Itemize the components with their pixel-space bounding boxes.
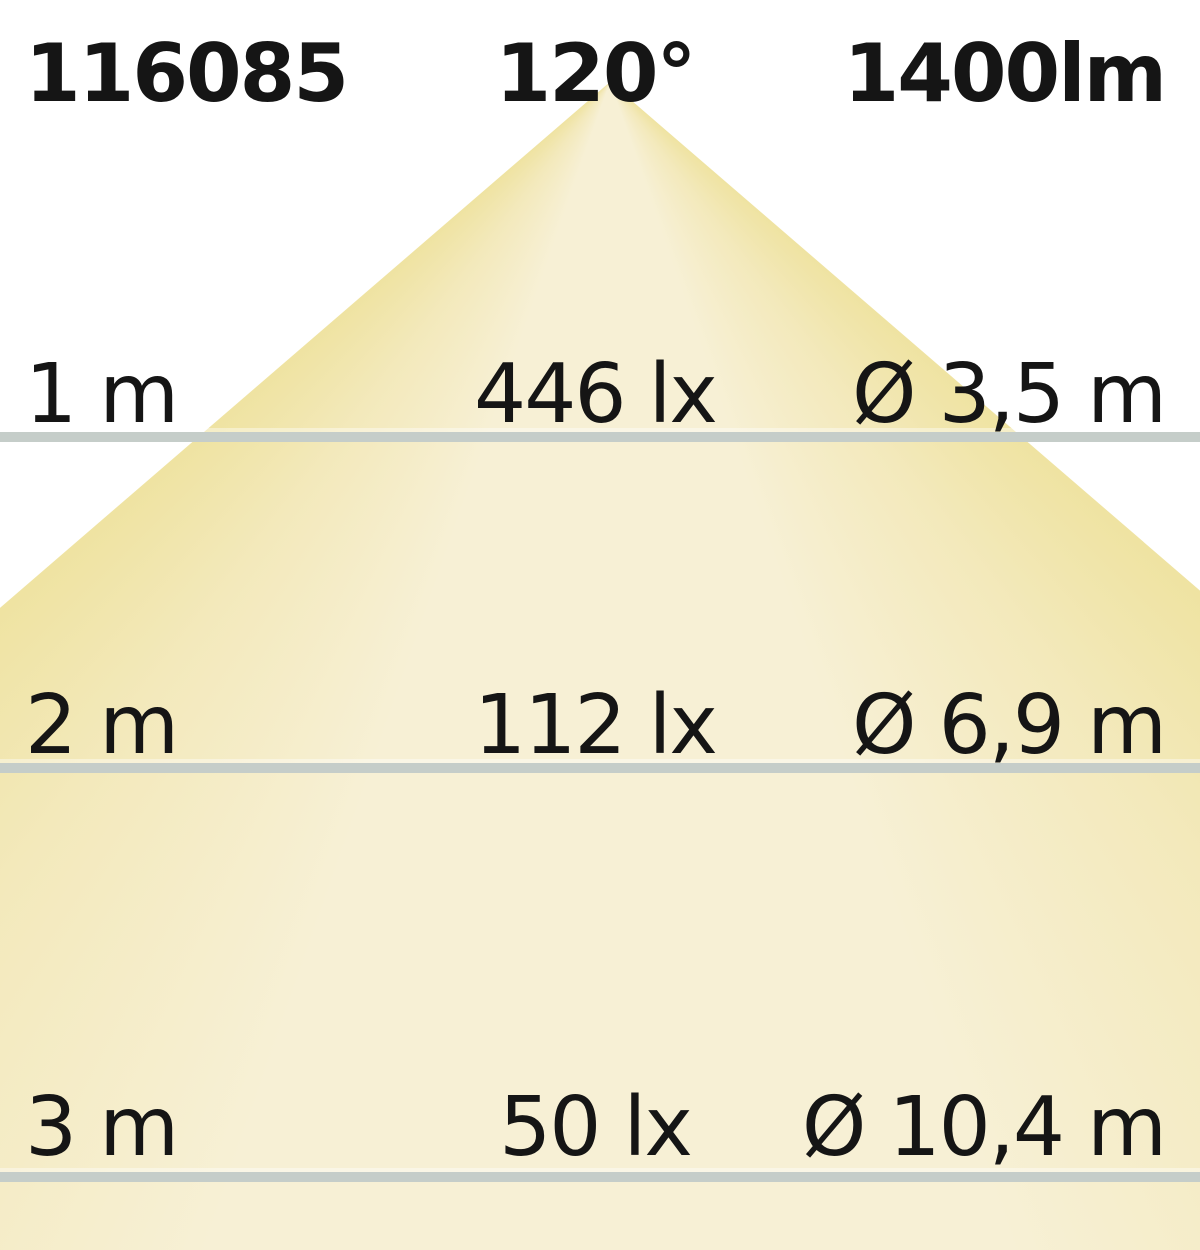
measurement-row-1m: 1 m 446 lx Ø 3,5 m <box>0 354 1200 436</box>
luminous-flux-label: 1400lm <box>785 34 1200 114</box>
illuminance-value: 50 lx <box>405 1087 785 1169</box>
beam-diameter-value: Ø 6,9 m <box>785 685 1200 767</box>
beam-diameter-value: Ø 10,4 m <box>785 1087 1200 1169</box>
distance-label: 1 m <box>0 354 405 436</box>
beam-angle-label: 120° <box>405 34 785 114</box>
measurement-row-2m: 2 m 112 lx Ø 6,9 m <box>0 685 1200 767</box>
distance-label: 3 m <box>0 1087 405 1169</box>
header-row: 116085 120° 1400lm <box>0 34 1200 114</box>
measurement-row-3m: 3 m 50 lx Ø 10,4 m <box>0 1087 1200 1169</box>
article-number: 116085 <box>0 34 405 114</box>
beam-diameter-value: Ø 3,5 m <box>785 354 1200 436</box>
distance-label: 2 m <box>0 685 405 767</box>
photometric-diagram: 116085 120° 1400lm 1 m 446 lx Ø 3,5 m 2 … <box>0 0 1200 1250</box>
illuminance-value: 112 lx <box>405 685 785 767</box>
light-cone-shape <box>0 0 1200 1250</box>
illuminance-value: 446 lx <box>405 354 785 436</box>
